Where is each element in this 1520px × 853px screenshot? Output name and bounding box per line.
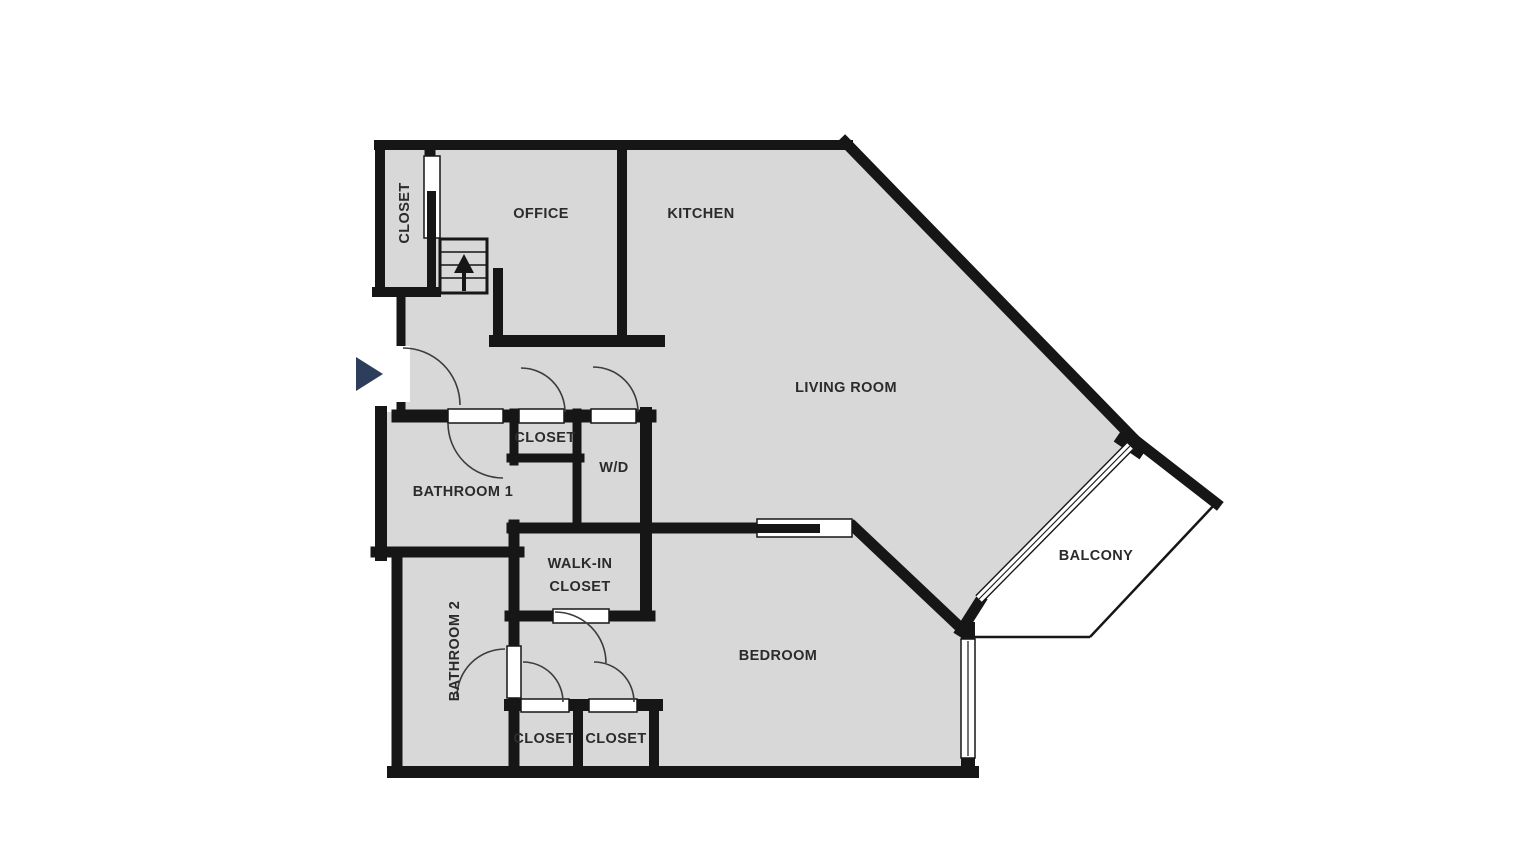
closet-bypass-door-bar (427, 191, 436, 290)
stairs (440, 239, 487, 293)
bathroom2-door-opening (507, 646, 521, 698)
room-label-balcony: BALCONY (1059, 548, 1134, 564)
room-label-closet-bottom-left: CLOSET (513, 731, 574, 747)
floor-plan-svg: CLOSET OFFICE KITCHEN LIVING ROOM CLOSET… (0, 0, 1520, 853)
room-label-living-room: LIVING ROOM (795, 380, 897, 396)
room-label-office: OFFICE (513, 206, 569, 222)
walkin-door-opening (553, 609, 609, 623)
closet-br-door-opening (589, 699, 637, 712)
floor-area (378, 143, 1133, 778)
room-label-bedroom: BEDROOM (739, 648, 818, 664)
room-label-closet-bottom-right: CLOSET (585, 731, 646, 747)
wd-door-opening (591, 409, 636, 423)
wall-balcony-top (1131, 437, 1216, 503)
room-label-closet-top: CLOSET (397, 182, 413, 243)
closet-bl-door-opening (521, 699, 569, 712)
bedroom-slider-bar (740, 524, 820, 533)
entry-marker-icon (356, 357, 383, 391)
room-label-bathroom-1: BATHROOM 1 (413, 484, 513, 500)
balcony-rail-right (1090, 503, 1216, 637)
hall-closet-door-opening (519, 409, 564, 423)
unit-floor (378, 143, 1133, 778)
room-label-walkin-line1: WALK-IN (548, 556, 613, 572)
entry-door-opening (392, 346, 410, 402)
room-label-walkin-line2: CLOSET (549, 579, 610, 595)
room-label-hall-closet: CLOSET (514, 430, 575, 446)
room-label-bathroom-2: BATHROOM 2 (447, 601, 463, 701)
room-label-wd: W/D (599, 460, 628, 476)
room-label-kitchen: KITCHEN (667, 206, 734, 222)
bathroom1-door-opening (448, 409, 503, 423)
floor-plan: CLOSET OFFICE KITCHEN LIVING ROOM CLOSET… (0, 0, 1520, 853)
